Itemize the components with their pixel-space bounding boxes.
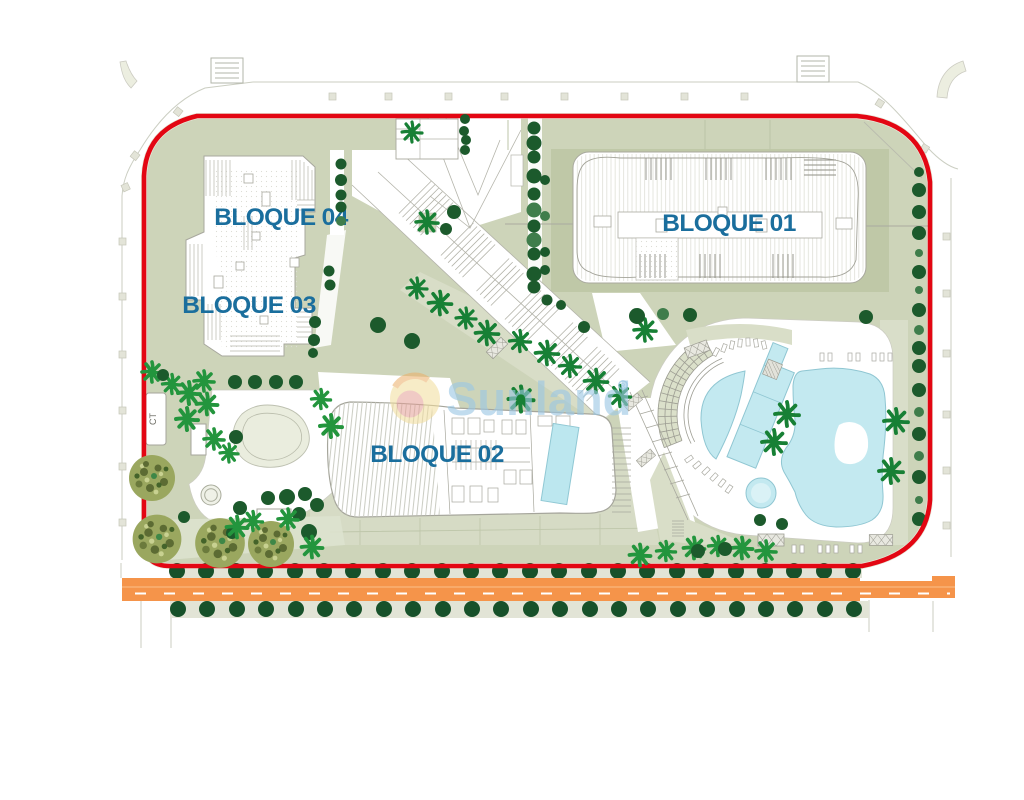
- svg-text:BLOQUE 03: BLOQUE 03: [182, 292, 315, 319]
- svg-text:CT: CT: [148, 413, 158, 425]
- svg-text:BLOQUE 01: BLOQUE 01: [662, 210, 795, 237]
- svg-text:BLOQUE 02: BLOQUE 02: [370, 441, 503, 468]
- svg-text:R: R: [621, 383, 626, 390]
- svg-text:BLOQUE 04: BLOQUE 04: [214, 204, 348, 231]
- svg-text:Sunland: Sunland: [446, 372, 631, 425]
